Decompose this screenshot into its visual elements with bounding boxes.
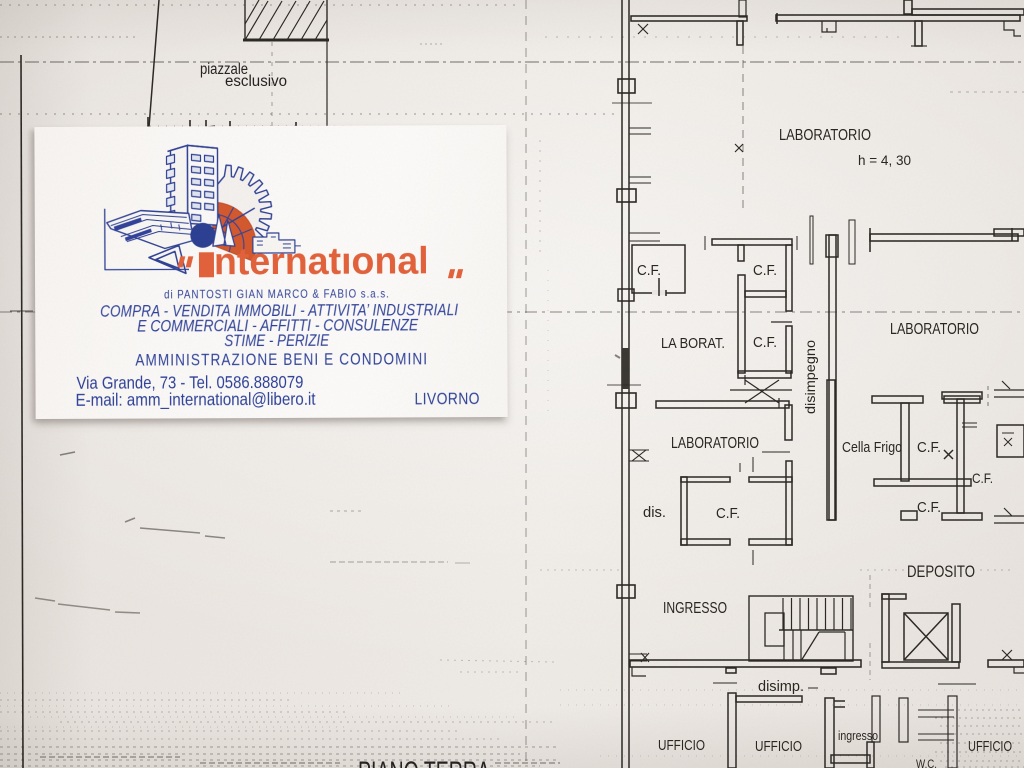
svg-text:PIANO TERRA: PIANO TERRA — [358, 756, 490, 768]
svg-text:LABORATORIO: LABORATORIO — [671, 435, 759, 452]
svg-text:disimp.: disimp. — [758, 678, 804, 695]
svg-text:ingresso: ingresso — [838, 728, 878, 743]
svg-text:C.F.: C.F. — [917, 499, 941, 516]
svg-text:C.F.: C.F. — [972, 470, 993, 486]
svg-text:LABORATORIO: LABORATORIO — [890, 321, 979, 338]
svg-text:Cella Frigo: Cella Frigo — [842, 439, 902, 456]
svg-text:h = 4, 30: h = 4, 30 — [858, 152, 911, 168]
svg-text:UFFICIO: UFFICIO — [755, 738, 802, 755]
svg-text:esclusivo: esclusivo — [225, 73, 287, 90]
svg-text:UFFICIO: UFFICIO — [658, 737, 705, 754]
svg-text:C.F.: C.F. — [637, 262, 661, 279]
svg-text:C.F.: C.F. — [753, 262, 777, 279]
svg-text:C.F.: C.F. — [716, 505, 740, 522]
svg-text:disimpegno: disimpegno — [802, 340, 818, 414]
svg-text:INGRESSO: INGRESSO — [663, 600, 727, 617]
svg-text:DEPOSITO: DEPOSITO — [907, 563, 975, 581]
svg-text:LABORATORIO: LABORATORIO — [779, 127, 871, 144]
svg-text:LA BORAT.: LA BORAT. — [661, 335, 725, 352]
svg-text:C.F.: C.F. — [917, 439, 941, 456]
svg-text:W.C.: W.C. — [916, 757, 937, 768]
svg-text:dis.: dis. — [643, 504, 666, 521]
svg-text:UFFICIO: UFFICIO — [968, 738, 1012, 755]
svg-text:C.F.: C.F. — [753, 334, 777, 351]
